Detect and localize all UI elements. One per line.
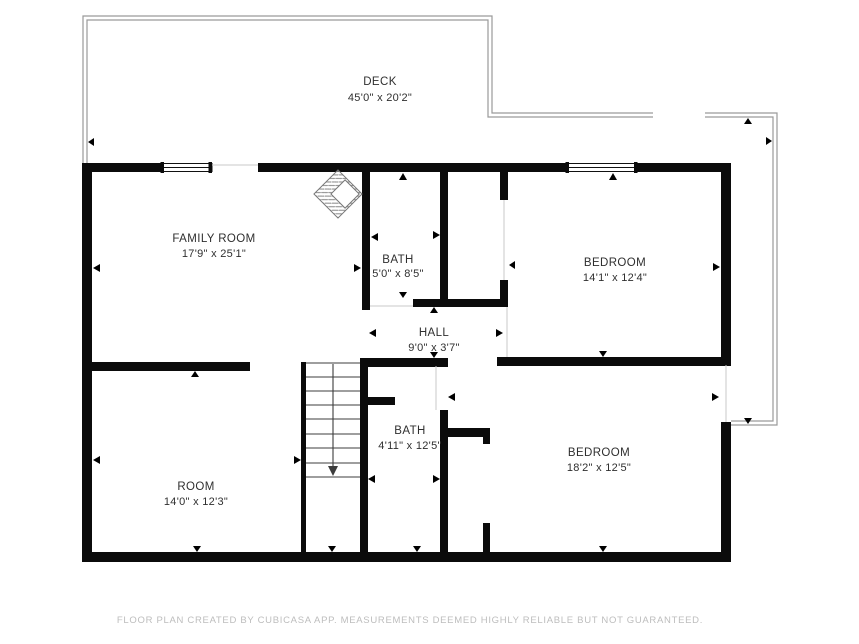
room-name: BATH bbox=[382, 254, 413, 266]
room-dimensions: 18'2" x 12'5" bbox=[567, 462, 631, 474]
room-name: BATH bbox=[394, 425, 425, 437]
arrow-left-icon bbox=[88, 138, 94, 146]
wall-closet-lower-stub bbox=[483, 428, 490, 444]
wall-bath-upper-bottom bbox=[413, 299, 508, 307]
room-dimensions: 17'9" x 25'1" bbox=[182, 248, 246, 260]
room-dimensions: 14'0" x 12'3" bbox=[164, 496, 228, 508]
room-label-family-room: FAMILY ROOM 17'9" x 25'1" bbox=[172, 233, 255, 260]
room-label-bath-lower: BATH 4'11" x 12'5" bbox=[378, 425, 441, 452]
wall-closet-lower-bottom-stub bbox=[483, 523, 490, 560]
room-name: HALL bbox=[419, 327, 450, 339]
room-label-deck: DECK 45'0" x 20'2" bbox=[348, 76, 412, 104]
wall-top-middle bbox=[258, 163, 568, 172]
arrow-left-icon bbox=[93, 456, 100, 464]
arrow-down-icon bbox=[193, 546, 201, 552]
room-name: FAMILY ROOM bbox=[172, 233, 255, 245]
arrow-left-icon bbox=[93, 264, 100, 272]
room-label-bedroom-lower: BEDROOM 18'2" x 12'5" bbox=[567, 447, 631, 474]
arrow-up-icon bbox=[399, 173, 407, 180]
arrow-left-icon bbox=[371, 233, 378, 241]
room-label-bedroom-upper: BEDROOM 14'1" x 12'4" bbox=[583, 257, 647, 284]
arrow-right-icon bbox=[294, 456, 301, 464]
arrow-up-icon bbox=[744, 118, 752, 124]
arrow-up-icon bbox=[430, 307, 438, 313]
room-name: ROOM bbox=[177, 481, 214, 493]
footer-disclaimer: FLOOR PLAN CREATED BY CUBICASA APP. MEAS… bbox=[117, 615, 703, 626]
room-name: BEDROOM bbox=[568, 447, 630, 459]
wall-bedroom-lower-top bbox=[497, 357, 731, 366]
arrow-right-icon bbox=[713, 263, 720, 271]
door-opening-lines bbox=[212, 165, 726, 422]
arrow-left-icon bbox=[448, 393, 455, 401]
arrow-right-icon bbox=[433, 231, 440, 239]
wall-closet-stub-top bbox=[500, 172, 508, 200]
wall-top-left bbox=[82, 163, 163, 172]
staircase bbox=[306, 363, 360, 477]
window-bedroom bbox=[566, 162, 638, 173]
wall-stairs-left bbox=[301, 362, 306, 560]
arrow-down-icon bbox=[399, 292, 407, 298]
wall-left bbox=[82, 163, 92, 562]
room-name: DECK bbox=[363, 76, 397, 88]
room-name: BEDROOM bbox=[584, 257, 646, 269]
arrow-down-icon bbox=[599, 546, 607, 552]
arrow-left-icon bbox=[368, 475, 375, 483]
wall-right-upper bbox=[721, 163, 731, 365]
fireplace-icon bbox=[314, 170, 362, 218]
wall-family-room-bottom bbox=[92, 362, 250, 371]
room-dimensions: 4'11" x 12'5" bbox=[378, 440, 441, 452]
arrow-left-icon bbox=[509, 261, 515, 269]
wall-bath-upper-right bbox=[440, 172, 448, 300]
stairs-down-arrow-icon bbox=[328, 466, 338, 476]
wall-bottom bbox=[82, 552, 731, 562]
wall-hall-bottom bbox=[360, 358, 448, 367]
arrow-right-icon bbox=[712, 393, 719, 401]
window-family-room bbox=[161, 162, 213, 173]
arrow-right-icon bbox=[766, 137, 772, 145]
room-dimensions: 9'0" x 3'7" bbox=[408, 342, 459, 354]
wall-bath-upper-left bbox=[362, 172, 370, 310]
wall-bath-lower-stub bbox=[368, 397, 395, 405]
arrow-up-icon bbox=[191, 371, 199, 377]
room-label-room: ROOM 14'0" x 12'3" bbox=[164, 481, 228, 508]
arrow-down-icon bbox=[328, 546, 336, 552]
arrow-left-icon bbox=[369, 329, 376, 337]
arrow-down-icon bbox=[413, 546, 421, 552]
arrow-down-icon bbox=[599, 351, 607, 357]
arrow-right-icon bbox=[433, 475, 440, 483]
wall-right-lower bbox=[721, 422, 731, 562]
floor-plan-canvas: DECK 45'0" x 20'2" FAMILY ROOM 17'9" x 2… bbox=[0, 0, 859, 644]
arrow-up-icon bbox=[609, 173, 617, 180]
arrow-right-icon bbox=[496, 329, 503, 337]
room-dimensions: 5'0" x 8'5" bbox=[372, 268, 423, 280]
room-label-bath-upper: BATH 5'0" x 8'5" bbox=[372, 254, 423, 280]
wall-stairs-right bbox=[360, 358, 368, 560]
room-dimensions: 45'0" x 20'2" bbox=[348, 92, 412, 104]
floor-plan: DECK 45'0" x 20'2" FAMILY ROOM 17'9" x 2… bbox=[0, 0, 859, 644]
wall-bath-lower-right bbox=[440, 410, 448, 560]
room-label-hall: HALL 9'0" x 3'7" bbox=[408, 327, 459, 354]
wall-top-right bbox=[637, 163, 731, 172]
arrow-right-icon bbox=[354, 264, 361, 272]
room-dimensions: 14'1" x 12'4" bbox=[583, 272, 647, 284]
